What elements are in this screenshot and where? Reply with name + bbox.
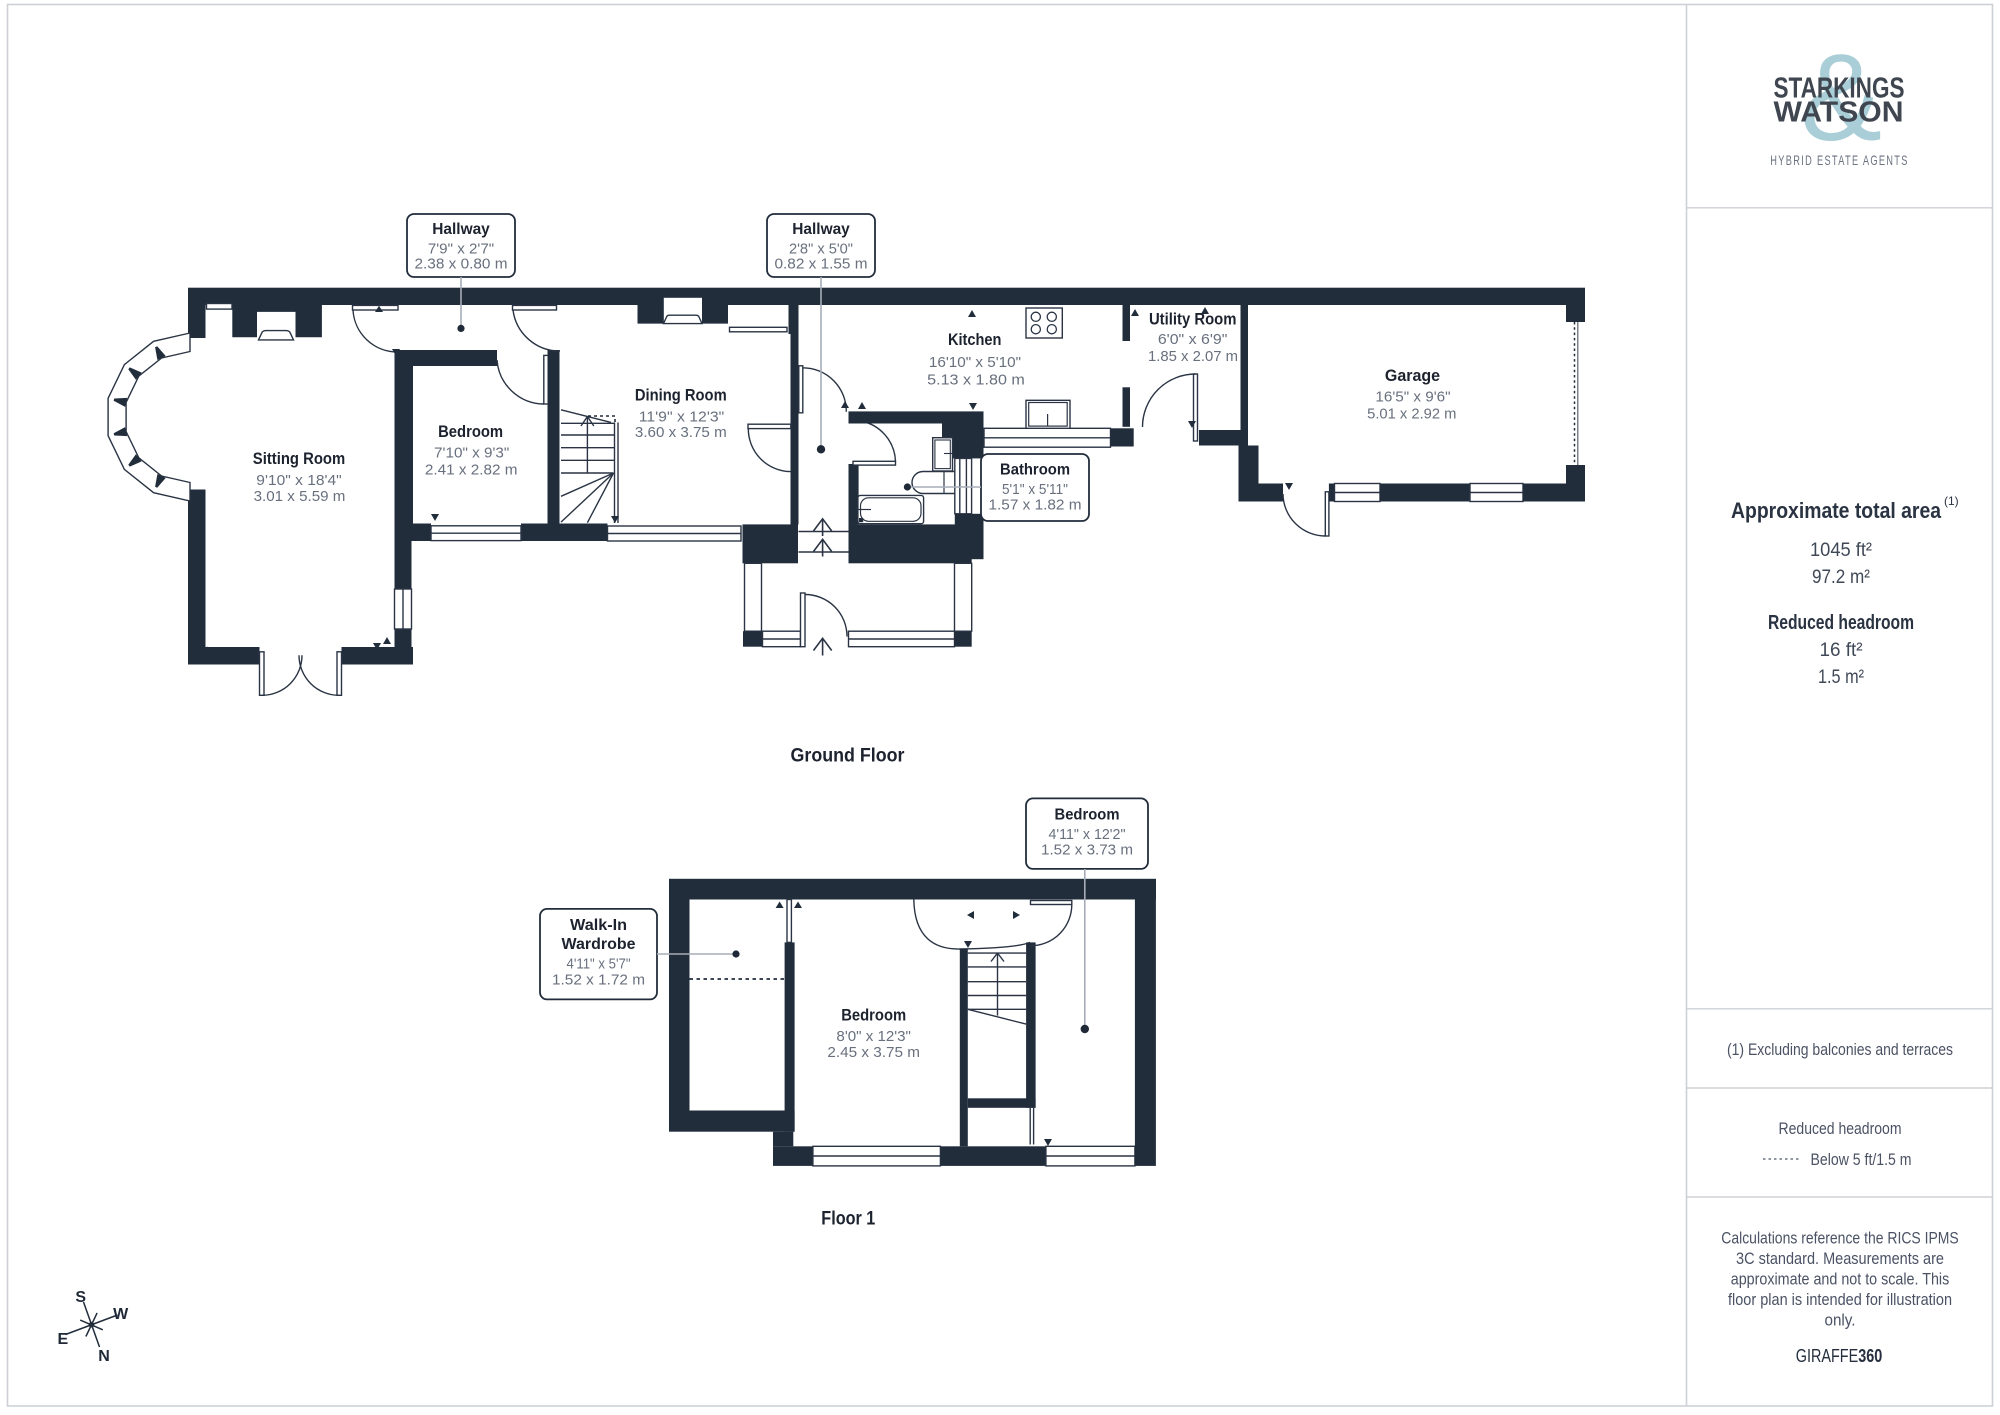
svg-text:6'0" x 6'9": 6'0" x 6'9" xyxy=(1158,332,1228,348)
svg-text:1.85 x 2.07 m: 1.85 x 2.07 m xyxy=(1148,349,1238,365)
svg-text:16'5" x 9'6": 16'5" x 9'6" xyxy=(1375,390,1450,406)
svg-text:floor plan is intended for ill: floor plan is intended for illustration xyxy=(1728,1290,1952,1309)
svg-text:Calculations reference the RIC: Calculations reference the RICS IPMS xyxy=(1721,1229,1959,1248)
svg-text:Hallway: Hallway xyxy=(432,221,490,238)
svg-text:1.52 x 3.73 m: 1.52 x 3.73 m xyxy=(1041,843,1133,859)
svg-text:approximate and not to scale.: approximate and not to scale. This xyxy=(1731,1270,1950,1289)
svg-text:E: E xyxy=(57,1331,68,1348)
svg-text:only.: only. xyxy=(1825,1311,1856,1330)
svg-text:GIRAFFE360: GIRAFFE360 xyxy=(1796,1345,1883,1366)
svg-text:(1): (1) xyxy=(1944,494,1959,508)
svg-text:2.41 x 2.82 m: 2.41 x 2.82 m xyxy=(425,463,518,479)
svg-text:Ground Floor: Ground Floor xyxy=(791,746,906,767)
svg-text:Dining Room: Dining Room xyxy=(635,386,727,405)
svg-text:2.38 x 0.80 m: 2.38 x 0.80 m xyxy=(415,257,508,273)
svg-text:Utility Room: Utility Room xyxy=(1149,310,1237,329)
svg-text:0.82 x 1.55 m: 0.82 x 1.55 m xyxy=(775,257,868,273)
svg-text:1045 ft²: 1045 ft² xyxy=(1810,539,1872,561)
svg-text:HYBRID ESTATE AGENTS: HYBRID ESTATE AGENTS xyxy=(1770,152,1909,168)
svg-text:Walk-In: Walk-In xyxy=(570,917,627,934)
svg-text:Reduced headroom: Reduced headroom xyxy=(1779,1119,1902,1138)
svg-text:2.45 x 3.75 m: 2.45 x 3.75 m xyxy=(827,1045,920,1061)
svg-text:5'1" x 5'11": 5'1" x 5'11" xyxy=(1002,482,1068,498)
svg-text:Below 5 ft/1.5 m: Below 5 ft/1.5 m xyxy=(1811,1150,1912,1169)
svg-text:97.2 m²: 97.2 m² xyxy=(1812,566,1870,588)
svg-text:9'10" x 18'4": 9'10" x 18'4" xyxy=(256,473,341,489)
svg-text:3C standard. Measurements are: 3C standard. Measurements are xyxy=(1736,1249,1944,1268)
svg-text:Approximate total area: Approximate total area xyxy=(1731,498,1942,523)
svg-text:WATSON: WATSON xyxy=(1774,97,1904,129)
svg-text:Garage: Garage xyxy=(1385,366,1440,385)
svg-text:Bedroom: Bedroom xyxy=(1055,807,1120,824)
svg-text:16'10" x 5'10": 16'10" x 5'10" xyxy=(929,355,1021,371)
svg-text:Wardrobe: Wardrobe xyxy=(562,936,636,953)
svg-text:3.01 x 5.59 m: 3.01 x 5.59 m xyxy=(254,489,346,505)
svg-text:(1) Excluding balconies and te: (1) Excluding balconies and terraces xyxy=(1727,1040,1953,1059)
svg-text:4'11" x 12'2": 4'11" x 12'2" xyxy=(1049,827,1126,843)
svg-text:3.60 x 3.75 m: 3.60 x 3.75 m xyxy=(635,425,727,441)
svg-text:1.5 m²: 1.5 m² xyxy=(1818,666,1864,688)
svg-text:Bedroom: Bedroom xyxy=(438,422,503,441)
svg-text:5.13 x 1.80 m: 5.13 x 1.80 m xyxy=(927,372,1025,388)
svg-text:2'8" x 5'0": 2'8" x 5'0" xyxy=(789,241,853,257)
svg-text:Kitchen: Kitchen xyxy=(948,330,1002,349)
svg-text:Floor 1: Floor 1 xyxy=(821,1209,875,1230)
svg-text:1.57 x 1.82 m: 1.57 x 1.82 m xyxy=(989,498,1082,514)
svg-text:W: W xyxy=(113,1306,129,1323)
svg-text:N: N xyxy=(98,1348,110,1365)
svg-text:S: S xyxy=(75,1289,86,1306)
svg-text:4'11" x 5'7": 4'11" x 5'7" xyxy=(567,957,631,973)
svg-text:7'9" x 2'7": 7'9" x 2'7" xyxy=(428,241,494,257)
svg-text:8'0" x 12'3": 8'0" x 12'3" xyxy=(836,1029,911,1045)
svg-text:Sitting Room: Sitting Room xyxy=(253,449,345,468)
svg-text:1.52 x 1.72 m: 1.52 x 1.72 m xyxy=(552,973,645,989)
svg-text:11'9" x 12'3": 11'9" x 12'3" xyxy=(639,409,725,425)
svg-text:Hallway: Hallway xyxy=(792,221,850,238)
svg-text:Bathroom: Bathroom xyxy=(1000,462,1070,479)
svg-text:5.01 x 2.92 m: 5.01 x 2.92 m xyxy=(1367,407,1456,423)
svg-text:16 ft²: 16 ft² xyxy=(1820,639,1863,661)
svg-text:Reduced headroom: Reduced headroom xyxy=(1768,612,1914,634)
svg-text:7'10" x 9'3": 7'10" x 9'3" xyxy=(434,446,509,462)
svg-text:Bedroom: Bedroom xyxy=(841,1005,906,1024)
